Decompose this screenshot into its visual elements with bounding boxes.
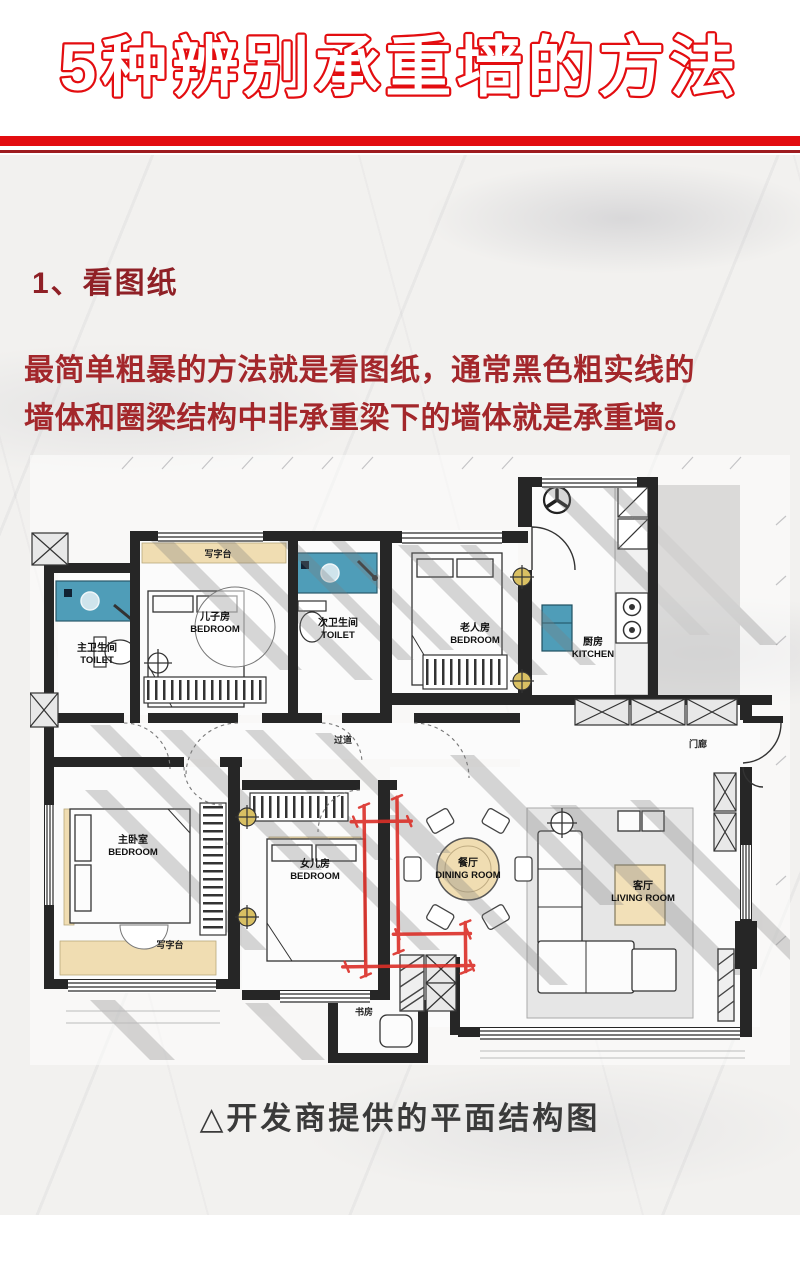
label-living-zh: 客厅	[632, 879, 653, 892]
label-kitchen-zh: 厨房	[583, 635, 603, 648]
label-bedroom-son-en: BEDROOM	[190, 624, 240, 635]
label-dining-en: DINING ROOM	[435, 870, 501, 881]
label-toilet-master-zh: 主卫生间	[77, 641, 117, 654]
section-heading: 1、看图纸	[32, 258, 179, 302]
label-bedroom-master-zh: 主卧室	[118, 833, 148, 846]
label-desk-bottom: 写字台	[156, 939, 183, 950]
paragraph-line-2: 墙体和圈梁结构中非承重梁下的墙体就是承重墙。	[24, 402, 695, 435]
entry-door-leaf	[743, 716, 783, 723]
label-dining-zh: 餐厅	[457, 856, 478, 869]
label-living-en: LIVING ROOM	[611, 893, 675, 904]
label-bedroom-son-zh: 儿子房	[199, 610, 230, 623]
title-band: 5种辨别承重墙的方法	[0, 0, 800, 155]
label-bedroom-master-en: BEDROOM	[108, 847, 158, 858]
study-desk	[380, 1015, 412, 1047]
page-title: 5种辨别承重墙的方法	[60, 30, 741, 104]
label-bedroom-elder-zh: 老人房	[459, 621, 490, 634]
infographic-page: 5种辨别承重墙的方法 1、看图纸 最简单粗暴的方法就是看图纸，通常黑色粗实线的墙…	[0, 0, 800, 1263]
bottom-margin	[0, 1215, 800, 1263]
label-corridor: 过道	[334, 734, 352, 745]
red-divider-thick	[0, 136, 800, 146]
floor-plan-svg: 主卫生间 TOILET 儿子房 BEDROOM 次卫生间 TOILET 老人房 …	[30, 455, 790, 1065]
section-paragraph: 最简单粗暴的方法就是看图纸，通常黑色粗实线的墙体和圈梁结构中非承重梁下的墙体就是…	[24, 347, 780, 443]
label-study: 书房	[355, 1006, 373, 1017]
label-toilet-second-zh: 次卫生间	[318, 616, 358, 629]
article-body: 1、看图纸 最简单粗暴的方法就是看图纸，通常黑色粗实线的墙体和圈梁结构中非承重梁…	[0, 155, 800, 1215]
floor-plan-image: 主卫生间 TOILET 儿子房 BEDROOM 次卫生间 TOILET 老人房 …	[30, 455, 790, 1065]
red-divider-thin	[0, 150, 800, 153]
title-art: 5种辨别承重墙的方法	[0, 8, 800, 128]
label-porch: 门廊	[689, 738, 707, 749]
label-bedroom-daughter-en: BEDROOM	[290, 871, 340, 882]
stove-icon	[616, 593, 648, 643]
label-bedroom-elder-en: BEDROOM	[450, 635, 500, 646]
tv-wall-block	[735, 921, 757, 969]
label-desk-top: 写字台	[204, 548, 231, 559]
label-toilet-second-en: TOILET	[321, 630, 355, 641]
label-bedroom-daughter-zh: 女儿房	[300, 857, 330, 870]
label-kitchen-en: KITCHEN	[572, 649, 614, 660]
floorplan-caption: △开发商提供的平面结构图	[0, 1093, 800, 1138]
label-toilet-master-en: TOILET	[80, 655, 114, 666]
paragraph-line-1: 最简单粗暴的方法就是看图纸，通常黑色粗实线的	[24, 354, 695, 387]
